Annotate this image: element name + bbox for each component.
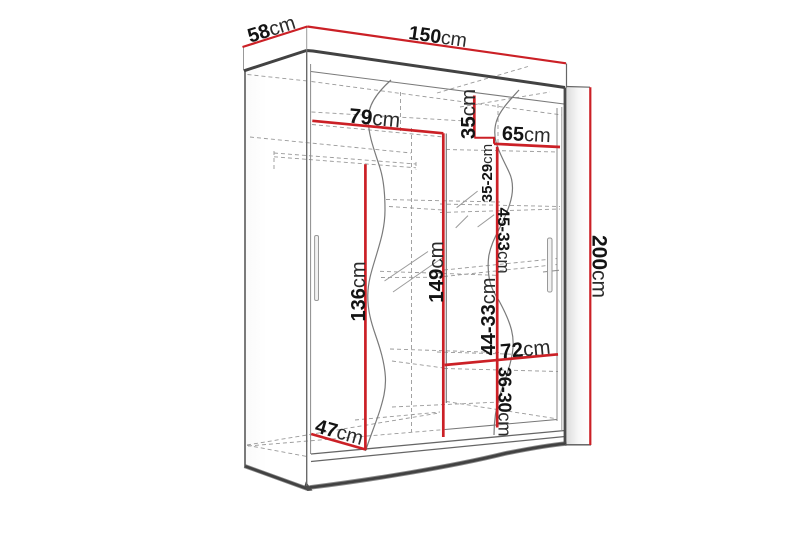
svg-text:36-30cm: 36-30cm: [495, 367, 516, 436]
svg-text:136cm: 136cm: [348, 261, 370, 321]
svg-text:72cm: 72cm: [499, 336, 551, 364]
svg-text:79cm: 79cm: [348, 105, 401, 133]
svg-text:200cm: 200cm: [588, 235, 611, 298]
svg-text:149cm: 149cm: [425, 241, 448, 303]
svg-text:65cm: 65cm: [501, 123, 551, 147]
svg-text:35-29cm: 35-29cm: [479, 144, 496, 202]
svg-text:44-33cm: 44-33cm: [478, 278, 500, 356]
svg-text:45-33cm: 45-33cm: [494, 208, 513, 274]
svg-text:35cm: 35cm: [457, 89, 480, 139]
